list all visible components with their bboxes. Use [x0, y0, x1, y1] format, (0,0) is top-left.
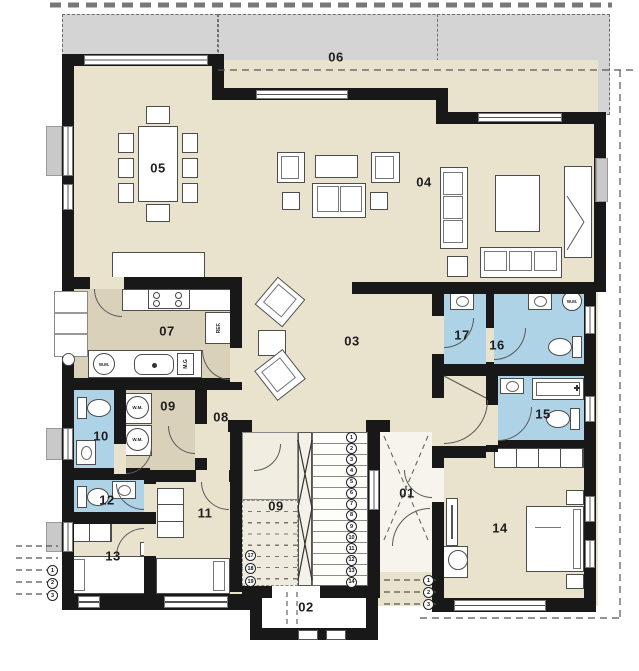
wall-segment [486, 440, 596, 448]
sink-symbol [528, 292, 552, 310]
step-number: 17 [245, 550, 256, 561]
nightstand [566, 490, 584, 505]
stair-landing [242, 432, 298, 500]
door-opening [195, 424, 207, 458]
stair-main-flight [312, 432, 368, 586]
door-opening [114, 444, 126, 474]
dining-chair [118, 158, 134, 178]
vent-symbol [62, 353, 75, 366]
room-label-13: 13 [105, 549, 120, 564]
closet [494, 448, 584, 468]
bed [156, 558, 230, 594]
toilet-tank [570, 408, 580, 430]
room-label-12: 12 [99, 493, 114, 508]
tv-unit [564, 166, 592, 258]
window [256, 90, 348, 99]
step-number: 18 [245, 563, 256, 574]
window-bay [54, 291, 88, 357]
sink-symbol [500, 378, 524, 394]
step-number: 4 [346, 465, 357, 476]
wall-segment [366, 420, 390, 432]
window-sill [596, 158, 608, 202]
stair-divider [298, 432, 312, 586]
stool [448, 550, 468, 570]
window [63, 522, 73, 552]
porch-step [326, 630, 346, 640]
sofa-two-seat [312, 183, 366, 218]
stair-step-numbers-upper: 171819 [245, 550, 257, 587]
sink-symbol [450, 292, 474, 310]
window [84, 55, 208, 65]
armchair [371, 152, 400, 183]
toilet-tank [572, 336, 582, 358]
step-number: 13 [346, 566, 357, 577]
dining-chair [182, 183, 198, 203]
door-opening [230, 348, 242, 382]
step-number: 3 [423, 599, 434, 610]
step-number: 11 [346, 543, 357, 554]
stair-step-numbers-main: 1234567891011121314 [346, 432, 358, 588]
room-label-03: 03 [344, 334, 359, 349]
side-table [447, 256, 468, 277]
room-label-04: 04 [416, 175, 431, 190]
washing-machine-symbol: W.M. [93, 353, 115, 375]
step-number: 3 [47, 590, 58, 601]
washing-machine-symbol: W.M. [562, 291, 582, 311]
dining-chair [146, 204, 170, 222]
toilet-tank [77, 397, 87, 419]
toilet-tank [77, 486, 87, 508]
room-label-16: 16 [489, 338, 504, 353]
wall-segment [436, 364, 596, 376]
wall-segment [62, 277, 242, 289]
room-label-05: 05 [150, 161, 165, 176]
armchair [277, 152, 305, 183]
wall-segment [230, 428, 242, 592]
dining-chair [146, 106, 170, 124]
window [585, 306, 595, 334]
room-label-09: 09 [160, 399, 175, 414]
room-label-08: 08 [213, 410, 228, 425]
door-opening [486, 405, 498, 445]
window [454, 600, 546, 611]
window [478, 113, 562, 122]
step-number: 2 [423, 587, 434, 598]
wall-segment [62, 512, 144, 524]
room-02-porch-floor [262, 598, 366, 628]
garden-step-numbers: 123 [47, 565, 59, 601]
porch-step [298, 630, 318, 640]
room-label-17: 17 [454, 328, 469, 343]
toilet-bowl [87, 399, 111, 417]
dining-chair [182, 158, 198, 178]
window [585, 396, 595, 422]
sink-symbol [76, 440, 96, 465]
kitchen-island-counter [112, 252, 205, 280]
wall-segment [62, 378, 242, 390]
window [164, 596, 228, 608]
window [78, 596, 100, 608]
window-sill [46, 428, 62, 460]
washing-machine-drum: W.M. [126, 396, 149, 419]
step-number: 1 [47, 565, 58, 576]
step-number: 14 [346, 577, 357, 588]
side-table [282, 192, 300, 210]
desk [446, 498, 458, 546]
dining-chair [118, 183, 134, 203]
wall-segment [228, 420, 252, 432]
floor-plan: REF. W.M. M.G W.M. W.M. W.M. [0, 0, 639, 671]
ottoman-table [495, 175, 540, 232]
window [585, 496, 595, 522]
room-label-02: 02 [298, 600, 313, 615]
door-opening [432, 316, 444, 354]
side-table [370, 192, 388, 210]
room-label-06: 06 [328, 50, 343, 65]
step-number: 10 [346, 532, 357, 543]
step-number: 6 [346, 488, 357, 499]
room-label-10: 10 [93, 429, 108, 444]
step-number: 1 [346, 432, 357, 443]
room-label-01: 01 [399, 486, 414, 501]
stove-symbol [148, 289, 190, 309]
entry-step-numbers: 123 [423, 575, 435, 610]
step-number: 3 [346, 454, 357, 465]
sofa-three-seat-vertical [440, 167, 468, 249]
window [63, 184, 73, 210]
step-number: 1 [423, 575, 434, 586]
door-opening [196, 470, 229, 482]
step-number: 12 [346, 555, 357, 566]
window [63, 126, 73, 176]
sofa-three-seat [480, 247, 562, 278]
main-entrance-opening [272, 586, 320, 598]
door-opening [432, 398, 444, 446]
window-sill [46, 522, 62, 552]
door-opening [144, 524, 156, 556]
room-label-11: 11 [198, 506, 213, 521]
room-01-entry-floor [380, 432, 432, 572]
door-opening [90, 277, 124, 289]
door-opening [432, 468, 444, 502]
refrigerator-label: REF. [216, 323, 222, 334]
window [369, 470, 379, 510]
window [63, 428, 73, 460]
bathtub-symbol [532, 378, 584, 400]
wall-segment [594, 112, 606, 292]
step-number: 5 [346, 477, 357, 488]
coffee-table [315, 155, 358, 178]
window-sill [46, 126, 62, 176]
room-label-15: 15 [535, 407, 550, 422]
room-label-07: 07 [159, 324, 174, 339]
room-label-09-stair: 09 [268, 499, 283, 514]
dining-chair [182, 133, 198, 153]
room-label-14: 14 [492, 521, 507, 536]
step-number: 2 [346, 443, 357, 454]
wall-segment [352, 282, 596, 294]
kitchen-unit-label: M.G [183, 359, 189, 368]
step-number: 7 [346, 499, 357, 510]
toilet-bowl [548, 338, 572, 356]
step-number: 8 [346, 510, 357, 521]
wall-segment [368, 428, 380, 592]
kitchen-sink-symbol [134, 354, 174, 375]
wardrobe [157, 488, 184, 538]
dining-chair [118, 133, 134, 153]
step-number: 2 [47, 578, 58, 589]
step-number: 9 [346, 521, 357, 532]
nightstand [566, 574, 584, 589]
wall-segment [444, 446, 486, 458]
bed-double [526, 506, 584, 572]
door-opening [144, 484, 156, 512]
window [585, 540, 595, 568]
step-number: 19 [245, 576, 256, 587]
